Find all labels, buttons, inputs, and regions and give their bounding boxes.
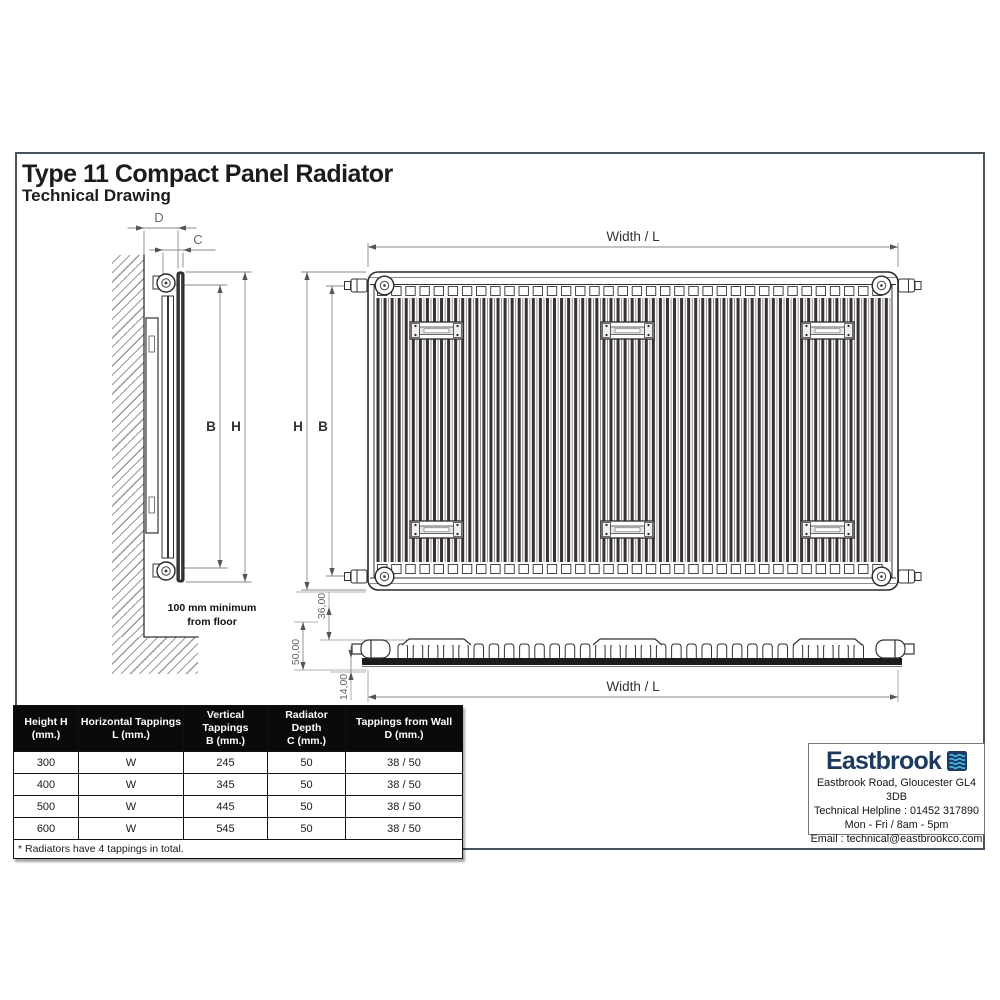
table-footnote-row: * Radiators have 4 tappings in total. — [14, 840, 463, 859]
table-row: 600W5455038 / 50 — [14, 818, 463, 840]
profile-width-label: Width / L — [606, 679, 660, 694]
profile-dim-36: 36,00 — [316, 593, 328, 619]
table-row: 400W3455038 / 50 — [14, 774, 463, 796]
profile-valve-left — [352, 640, 390, 658]
front-width-label: Width / L — [606, 229, 660, 244]
profile-bracket-bumps — [402, 639, 862, 645]
col-header-height: Height H(mm.) — [14, 706, 79, 752]
brand-logo-text: Eastbrook — [826, 747, 941, 776]
dimensions-table: Height H(mm.) Horizontal TappingsL (mm.)… — [13, 705, 463, 859]
brand-email: Email : technical@eastbrookco.com — [809, 832, 984, 846]
brand-logo: Eastbrook — [809, 746, 984, 776]
table-row: 500W4455038 / 50 — [14, 796, 463, 818]
side-view: D C B H 100 mm minimum from floor — [128, 210, 256, 637]
table-footnote: * Radiators have 4 tappings in total. — [14, 840, 463, 859]
side-valve-top — [153, 274, 175, 292]
profile-fins — [398, 644, 864, 658]
side-valve-bottom — [153, 562, 175, 580]
col-header-tappings-from-wall: Tappings from WallD (mm.) — [346, 706, 463, 752]
front-dim-label-h: H — [293, 419, 303, 434]
profile-dim-50: 50,00 — [290, 639, 302, 665]
profile-valve-right — [876, 640, 914, 658]
profile-dim-14: 14,00 — [338, 674, 350, 700]
brand-hours: Mon - Fri / 8am - 5pm — [809, 818, 984, 832]
col-header-vertical-tappings: Vertical TappingsB (mm.) — [184, 706, 268, 752]
front-dim-label-b: B — [318, 419, 328, 434]
dim-label-d: D — [154, 210, 163, 225]
dim-label-c: C — [193, 232, 202, 247]
col-header-horizontal-tappings: Horizontal TappingsL (mm.) — [79, 706, 184, 752]
profile-view: 36,00 50,00 14,00 Width / L — [290, 592, 914, 702]
side-dim-label-b: B — [206, 419, 216, 434]
brand-helpline: Technical Helpline : 01452 317890 — [809, 804, 984, 818]
floor-note-line2: from floor — [187, 616, 237, 628]
table-row: 300W2455038 / 50 — [14, 752, 463, 774]
brand-address: Eastbrook Road, Gloucester GL4 3DB — [809, 776, 984, 804]
waves-icon — [947, 751, 967, 771]
brand-box: Eastbrook Eastbrook Road, Gloucester GL4… — [808, 743, 985, 835]
col-header-radiator-depth: Radiator DepthC (mm.) — [268, 706, 346, 752]
floor-note-line1: 100 mm minimum — [168, 602, 257, 614]
side-dim-label-h: H — [231, 419, 241, 434]
front-view: Width / L H B — [293, 229, 921, 590]
profile-front-plate — [362, 658, 902, 665]
